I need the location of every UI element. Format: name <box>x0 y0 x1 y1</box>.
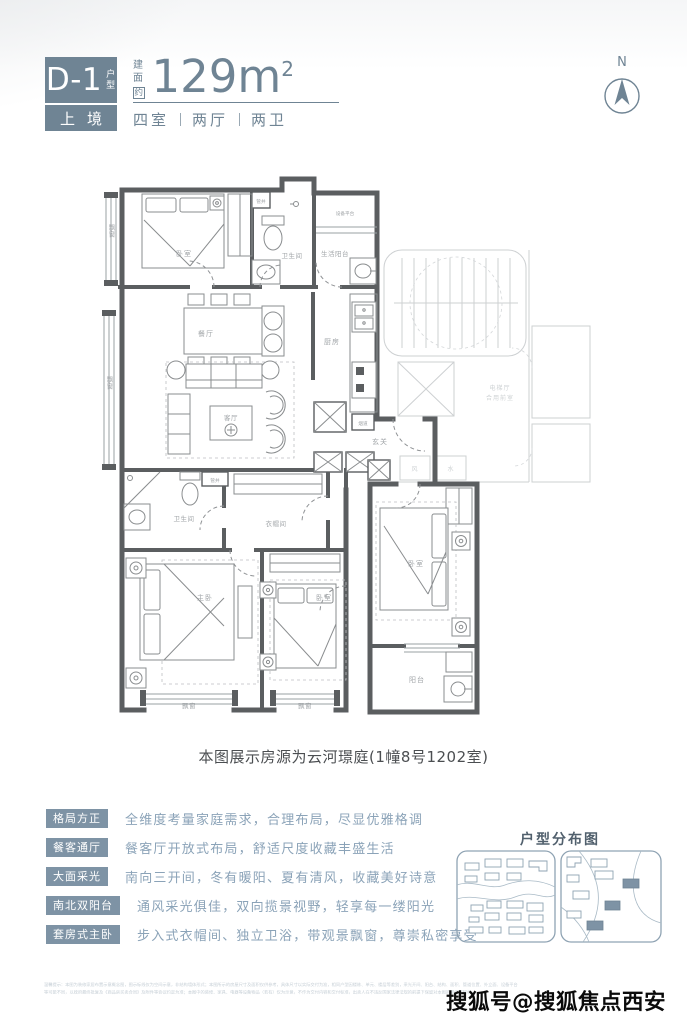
feature-desc: 通风采光俱佳，双向揽景视野，轻享每一缕阳光 <box>137 896 435 915</box>
room-label-service-balcony: 生活阳台 <box>321 249 349 258</box>
area-number: 129m <box>152 50 282 103</box>
room-label-pipe-shaft: 管井 <box>210 477 220 484</box>
room-label-elevator-hall: 电梯厅 <box>489 384 510 392</box>
room-label-bay-window: 飘窗 <box>107 224 115 239</box>
room-label-vent-shaft: 风 <box>411 466 418 473</box>
unit-code-box: D-1 户型 <box>45 57 117 103</box>
room-label-bay-window: 飘窗 <box>298 701 312 710</box>
unit-badge: D-1 户型 上境 <box>45 57 117 131</box>
area-label-char: 面 <box>133 74 145 84</box>
feature-desc: 全维度考量家庭需求，合理布局，尽显优雅格调 <box>125 809 423 828</box>
feature-row: 套房式主卧 步入式衣帽间、独立卫浴，带观景飘窗，尊崇私密享受 <box>46 924 478 945</box>
room-label-cloakroom: 衣帽间 <box>266 519 287 528</box>
balcony-fixtures <box>444 652 472 702</box>
floor-plan: 电梯厅 合用前室 风 水 <box>84 166 600 744</box>
distribution-map <box>455 849 663 944</box>
room-label-bay-window: 飘窗 <box>182 701 196 710</box>
feature-row: 大面采光 南向三开间，冬有暖阳、夏有清风，收藏美好诗意 <box>46 866 478 887</box>
area-block: 建 面 约 129m2 四室 两厅 两卫 <box>133 56 339 130</box>
feature-tag: 格局方正 <box>46 809 108 828</box>
master-bed-icon <box>126 558 258 688</box>
rooms-summary-item: 两厅 <box>192 109 228 130</box>
area-value: 129m2 <box>152 56 294 99</box>
room-label-kitchen: 厨房 <box>324 337 340 346</box>
feature-row: 格局方正 全维度考量家庭需求，合理布局，尽显优雅格调 <box>46 808 478 829</box>
room-label-bathroom: 卫生间 <box>282 251 303 260</box>
feature-tag: 大面采光 <box>46 867 108 886</box>
neighbour-core: 电梯厅 合用前室 风 水 <box>384 250 590 482</box>
room-label-balcony: 阳台 <box>409 675 425 684</box>
compass: N <box>592 50 652 130</box>
feature-desc: 步入式衣帽间、独立卫浴，带观景飘窗，尊崇私密享受 <box>137 925 478 944</box>
series-name: 上境 <box>45 105 117 131</box>
room-label-shared-lobby: 合用前室 <box>486 394 514 402</box>
room-label-equipment-platform: 设备平台 <box>336 210 355 217</box>
bed2-icon <box>260 580 346 680</box>
rooms-summary: 四室 两厅 两卫 <box>133 109 339 130</box>
feature-tag: 南北双阳台 <box>46 896 120 915</box>
feature-row: 餐客通厅 餐客厅开放式布局，舒适尺度收藏丰盛生活 <box>46 837 478 858</box>
room-label-dining: 餐厅 <box>198 329 214 338</box>
room-label-entry: 玄关 <box>372 437 388 446</box>
watermark: 搜狐号@搜狐焦点西安站 <box>446 985 687 1021</box>
kitchen-fixtures <box>350 294 377 412</box>
room-label-living: 客厅 <box>224 413 238 422</box>
room-label-bay-window: 飘窗 <box>105 376 113 391</box>
room-label-water-shaft: 水 <box>447 465 454 473</box>
room-label-bedroom: 卧室 <box>176 249 192 258</box>
feature-tag: 餐客通厅 <box>46 838 108 857</box>
floorplan-flyer: D-1 户型 上境 建 面 约 129m2 四室 两厅 两卫 N <box>0 0 687 1021</box>
room-label-bedroom: 卧室 <box>408 559 424 568</box>
distribution-map-title: 户型分布图 <box>455 829 665 849</box>
bathroom-fixtures <box>252 202 299 285</box>
area-label-char: 建 <box>133 61 145 71</box>
bed3-icon <box>376 502 470 636</box>
room-label-bedroom: 卧室 <box>316 593 332 602</box>
caption: 本图展示房源为云河璟庭(1幢8号1202室) <box>0 746 687 767</box>
north-compass-icon: N <box>594 50 650 126</box>
rooms-summary-item: 两卫 <box>251 109 287 130</box>
unit-code: D-1 <box>46 65 102 96</box>
area-label: 建 面 约 <box>133 61 145 99</box>
room-label-pipe-shaft: 管井 <box>256 198 266 205</box>
rooms-summary-item: 四室 <box>133 109 169 130</box>
north-label: N <box>617 55 627 70</box>
feature-desc: 南向三开间，冬有暖阳、夏有清风，收藏美好诗意 <box>125 867 437 886</box>
divider <box>180 113 181 126</box>
feature-desc: 餐客厅开放式布局，舒适尺度收藏丰盛生活 <box>125 838 395 857</box>
feature-tag: 套房式主卧 <box>46 925 120 944</box>
feature-row: 南北双阳台 通风采光俱佳，双向揽景视野，轻享每一缕阳光 <box>46 895 478 916</box>
room-label-flue: 烟道 <box>358 420 368 427</box>
area-label-char-circled: 约 <box>133 87 145 99</box>
room-label-master-bedroom: 主卧 <box>197 593 213 602</box>
feature-list: 格局方正 全维度考量家庭需求，合理布局，尽显优雅格调 餐客通厅 餐客厅开放式布局… <box>46 808 478 945</box>
unit-code-suffix: 户型 <box>106 70 116 93</box>
divider <box>239 113 240 126</box>
area-superscript: 2 <box>281 57 294 81</box>
laundry-basin-icon <box>350 258 376 284</box>
room-label-bathroom: 卫生间 <box>174 514 195 523</box>
sofa-set-icon <box>166 361 294 458</box>
